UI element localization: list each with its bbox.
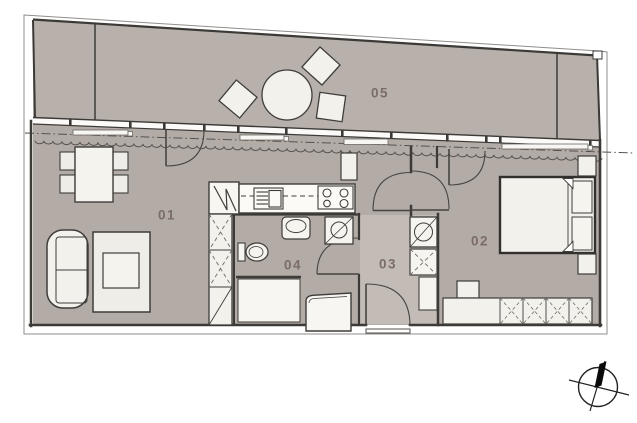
nightstand	[578, 254, 596, 274]
room-label-02: 02	[471, 234, 489, 249]
pillow	[572, 181, 592, 213]
floor-plan-drawing	[0, 0, 637, 423]
chair	[113, 175, 128, 193]
fridge	[209, 182, 239, 214]
shower-tray	[238, 279, 300, 322]
floor-plan-page: 01 02 03 04 05	[0, 0, 637, 423]
entrance-threshold	[366, 329, 410, 333]
sofa	[47, 230, 88, 308]
wardrobe	[443, 298, 592, 324]
tall-cabinets	[209, 214, 232, 325]
wash-basin	[282, 217, 310, 239]
balcony-chair	[316, 92, 345, 121]
double-bed	[500, 177, 595, 253]
dining-table	[75, 147, 113, 202]
chair	[60, 152, 75, 170]
toilet	[238, 243, 268, 261]
washing-machine-bath	[325, 217, 353, 244]
north-needle	[595, 362, 607, 389]
chair	[113, 152, 128, 170]
room-label-04: 04	[284, 258, 302, 273]
pillow	[572, 217, 592, 250]
balcony-corner-post	[593, 51, 602, 59]
room-label-03: 03	[379, 257, 397, 272]
round-table	[262, 70, 312, 120]
room-label-01: 01	[158, 208, 176, 223]
counter-end-cabinet	[341, 153, 357, 180]
nightstand	[578, 156, 596, 176]
stool	[457, 281, 479, 298]
coffee-table	[103, 253, 139, 288]
chair	[60, 175, 75, 193]
north-compass-icon	[569, 361, 629, 411]
hall-cabinet	[419, 277, 437, 310]
coffee-table-rug	[93, 232, 150, 312]
room-label-05: 05	[371, 86, 389, 101]
washing-machine-hall	[410, 217, 437, 247]
